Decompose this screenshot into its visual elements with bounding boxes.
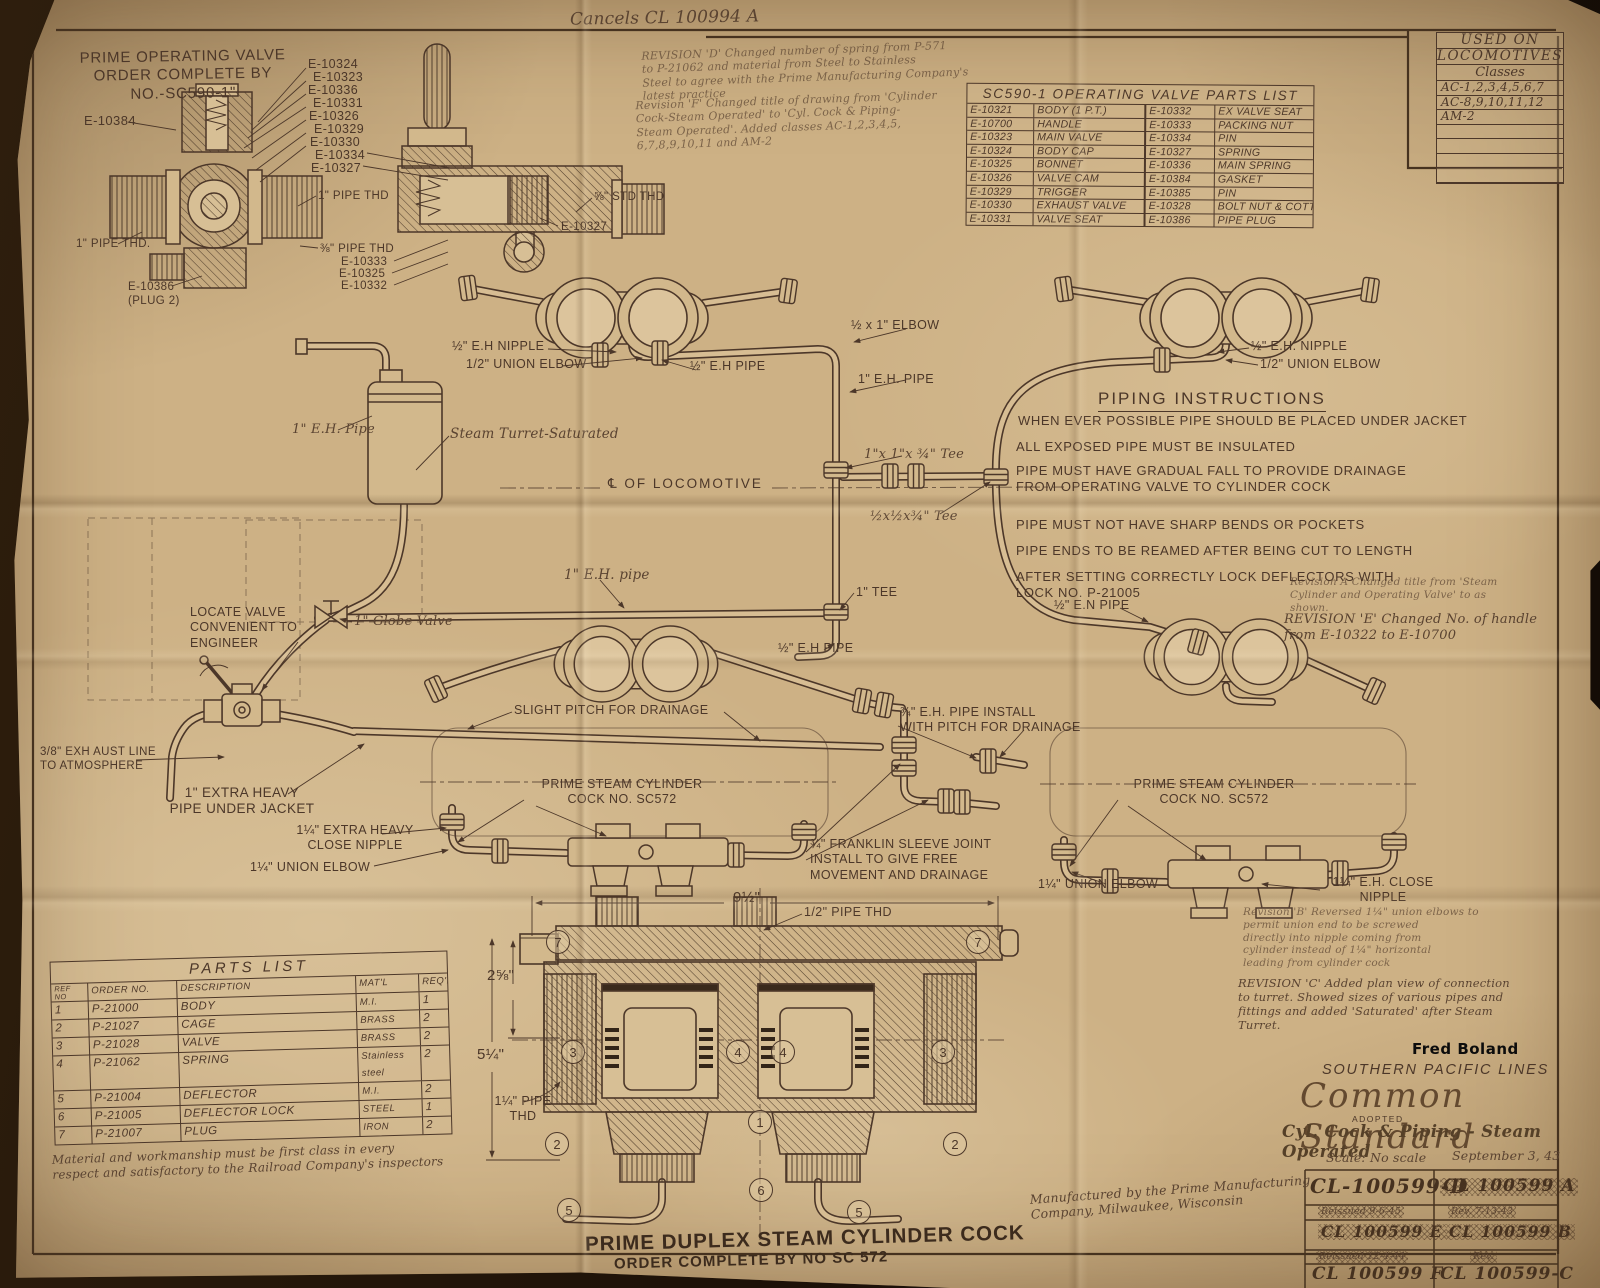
ref-circle: 7 (966, 930, 990, 954)
ref-circle: 7 (546, 930, 570, 954)
ref-circle: 3 (561, 1040, 585, 1064)
used-on-table: USED ON LOCOMOTIVES Classes AC-1,2,3,4,5… (1436, 32, 1564, 184)
used-on-row: AC-1,2,3,4,5,6,7 (1437, 81, 1563, 96)
operating-valve-parts-title: SC590-1 OPERATING VALVE PARTS LIST (967, 84, 1313, 106)
used-on-subtitle: Classes (1437, 65, 1563, 81)
used-on-row (1437, 125, 1563, 140)
ref-circle: 4 (726, 1040, 750, 1064)
ref-circle: 2 (943, 1132, 967, 1156)
used-on-row (1437, 168, 1563, 183)
used-on-row (1437, 154, 1563, 169)
parts-list-table: PARTS LIST REF NO ORDER NO. DESCRIPTION … (50, 950, 453, 1145)
used-on-title: USED ON (1437, 33, 1563, 49)
ref-circle: 3 (931, 1040, 955, 1064)
ref-circle: 5 (557, 1198, 581, 1222)
used-on-title2: LOCOMOTIVES (1437, 49, 1563, 65)
operating-valve-parts-row: E-10331VALVE SEAT E-10386PIPE PLUG (967, 213, 1313, 228)
ref-circle: 5 (847, 1200, 871, 1224)
used-on-row: AC-8,9,10,11,12 (1437, 96, 1563, 111)
used-on-row (1437, 139, 1563, 154)
ref-circle: 4 (771, 1040, 795, 1064)
ref-circle: 2 (545, 1132, 569, 1156)
used-on-row: AM-2 (1437, 110, 1563, 125)
operating-valve-parts-table: SC590-1 OPERATING VALVE PARTS LIST E-103… (966, 83, 1315, 229)
drawing-sheet: Cancels CL 100994 APRIME OPERATING VALVE… (0, 0, 1600, 1288)
ref-circle: 6 (749, 1178, 773, 1202)
ref-circle: 1 (748, 1110, 772, 1134)
